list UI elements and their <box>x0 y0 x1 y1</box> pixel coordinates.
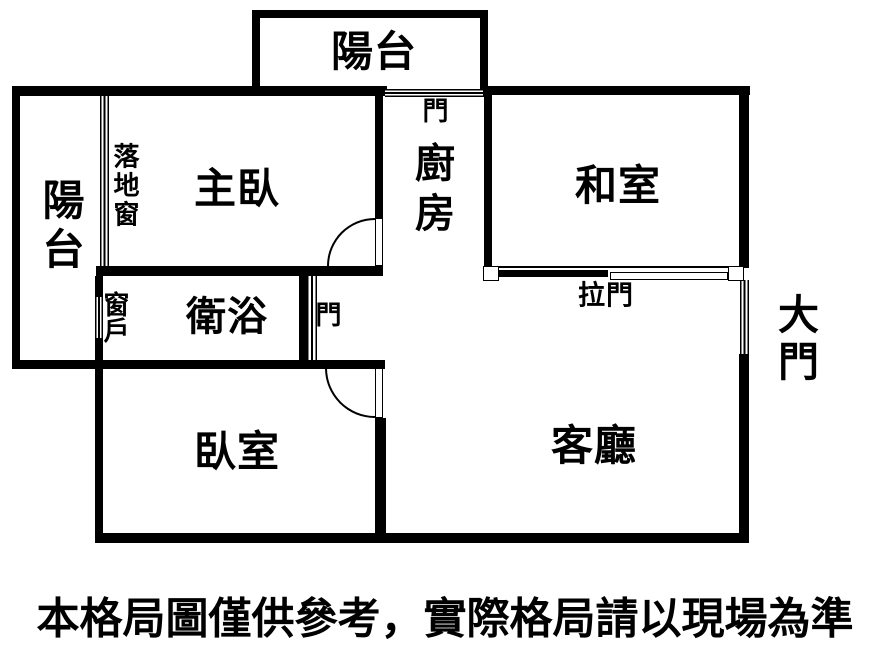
label-master-bedroom: 主臥 <box>194 168 280 210</box>
wall-washitsu-left <box>484 86 492 267</box>
wall-bedroom-right <box>375 418 386 535</box>
wall-bath-right <box>299 266 307 364</box>
kitchen-balcony-door-symbol <box>385 89 483 97</box>
wall-right-outer-upper <box>739 86 749 268</box>
wall-bottom <box>95 533 749 543</box>
wall-top-balcony-top <box>252 10 488 18</box>
sliding-door-panel-solid <box>499 270 608 277</box>
wall-right-outer-lower <box>739 354 749 543</box>
wall-top-balcony-right <box>480 10 488 97</box>
disclaimer-text: 本格局圖僅供參考，實際格局請以現場為準 <box>37 599 854 642</box>
label-sliding-door: 拉門 <box>578 283 634 310</box>
label-balcony-top: 陽台 <box>331 31 417 73</box>
master-door-leaf <box>375 218 383 266</box>
label-door-kitchen-balcony: 門 <box>422 99 449 125</box>
label-main-door: 大門 <box>774 293 815 387</box>
label-door-bathroom: 門 <box>315 303 342 329</box>
wall-outer-left <box>12 86 20 369</box>
floor-window-symbol <box>100 96 109 266</box>
wall-master-bottom <box>96 266 383 276</box>
bedroom-door-leaf <box>375 368 383 418</box>
sliding-door-cap-left <box>483 266 499 281</box>
sliding-door-panel-open <box>610 272 728 280</box>
label-bedroom: 臥室 <box>194 431 280 473</box>
sliding-door-cap-right <box>728 266 744 281</box>
master-door-arc <box>327 218 375 266</box>
wall-top-balcony-left <box>252 10 260 96</box>
label-washitsu: 和室 <box>575 165 661 207</box>
sliding-door-track <box>499 266 728 268</box>
label-balcony-left: 陽台 <box>39 178 81 276</box>
wall-bedroom-left <box>95 360 103 540</box>
label-living-room: 客廳 <box>551 425 637 467</box>
label-floor-window: 落地窗 <box>111 143 137 230</box>
floor-plan: 陽台 門 落地窗 主臥 陽台 廚房 和室 窗戶 衛浴 門 拉門 大門 臥室 客廳… <box>0 0 888 652</box>
label-window: 窗戶 <box>101 291 127 343</box>
wall-master-right <box>375 96 383 218</box>
bedroom-door-arc <box>325 368 375 418</box>
label-kitchen: 廚房 <box>411 142 451 242</box>
label-bathroom: 衛浴 <box>186 297 268 337</box>
wall-main-top-left <box>12 86 387 96</box>
main-door-opening-symbol <box>740 280 749 354</box>
wall-main-top-right <box>484 86 750 95</box>
